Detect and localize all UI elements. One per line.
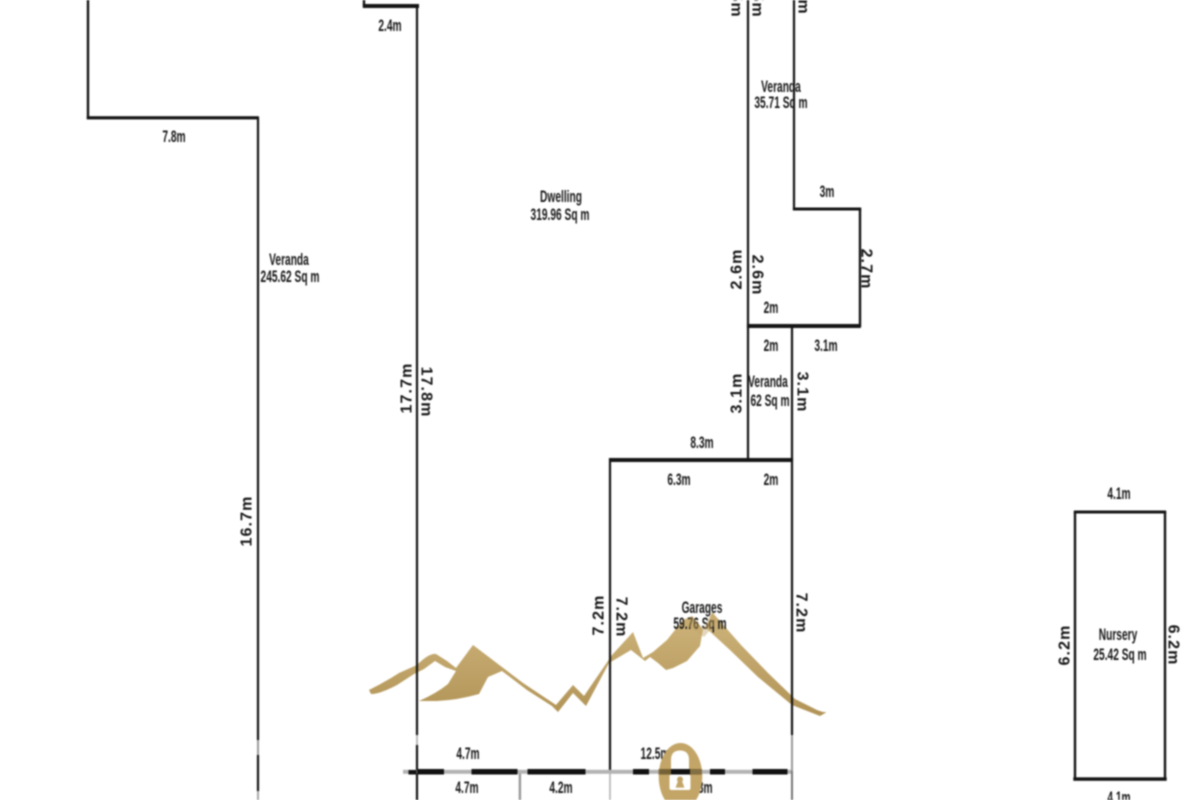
svg-text:Nursery: Nursery: [1099, 624, 1138, 643]
svg-text:2.7m: 2.7m: [858, 249, 875, 290]
svg-text:2m: 2m: [764, 469, 779, 488]
svg-text:7.2m: 7.2m: [613, 597, 630, 638]
svg-text:7.8m: 7.8m: [162, 126, 185, 145]
svg-text:2.6m: 2.6m: [729, 249, 746, 290]
svg-text:17.8m: 17.8m: [418, 367, 435, 418]
svg-text:6.2m: 6.2m: [1057, 625, 1074, 666]
svg-text:5m: 5m: [749, 0, 766, 18]
svg-text:8.3m: 8.3m: [690, 432, 713, 451]
svg-text:2m: 2m: [764, 297, 779, 316]
svg-text:7.2m: 7.2m: [793, 593, 810, 634]
svg-text:4.7m: 4.7m: [455, 777, 478, 796]
svg-text:7.2m: 7.2m: [591, 595, 608, 636]
svg-text:2m: 2m: [764, 335, 779, 354]
svg-text:3.1m: 3.1m: [729, 373, 746, 414]
svg-text:6.2m: 6.2m: [1165, 625, 1182, 666]
svg-text:319.96 Sq m: 319.96 Sq m: [531, 204, 590, 223]
svg-text:25.42 Sq m: 25.42 Sq m: [1093, 644, 1146, 663]
svg-text:3.1m: 3.1m: [794, 372, 811, 413]
svg-text:Veranda: Veranda: [748, 371, 788, 390]
svg-text:17.7m: 17.7m: [399, 363, 416, 414]
svg-text:Dwelling: Dwelling: [540, 186, 582, 205]
svg-text:3m: 3m: [820, 181, 835, 200]
svg-text:3m: 3m: [795, 0, 812, 15]
svg-text:16.7m: 16.7m: [239, 496, 256, 547]
svg-text:245.62 Sq m: 245.62 Sq m: [261, 266, 320, 285]
svg-text:35.71 Sq m: 35.71 Sq m: [754, 92, 807, 111]
svg-text:5m: 5m: [728, 0, 745, 18]
svg-text:6.3m: 6.3m: [667, 469, 690, 488]
svg-text:4.7m: 4.7m: [456, 743, 479, 762]
svg-text:4.1m: 4.1m: [1107, 483, 1130, 502]
svg-text:3.1m: 3.1m: [814, 335, 837, 354]
svg-text:2.6m: 2.6m: [749, 255, 766, 296]
svg-text:62 Sq m: 62 Sq m: [750, 390, 789, 409]
svg-text:2.4m: 2.4m: [378, 15, 401, 34]
svg-text:4.2m: 4.2m: [549, 777, 572, 796]
svg-text:4.1m: 4.1m: [1107, 787, 1130, 800]
